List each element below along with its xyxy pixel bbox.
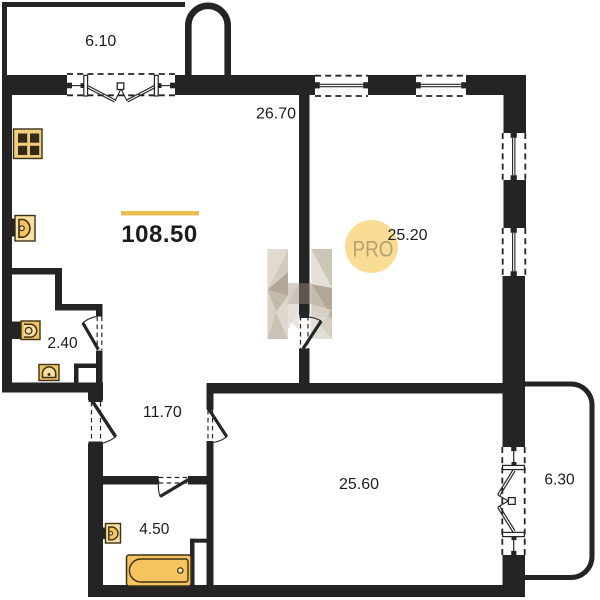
svg-text:6.30: 6.30	[544, 472, 575, 489]
svg-text:4.50: 4.50	[139, 521, 170, 538]
svg-text:11.70: 11.70	[143, 404, 182, 421]
svg-text:2.40: 2.40	[47, 335, 78, 352]
svg-text:26.70: 26.70	[256, 106, 296, 123]
svg-text:6.10: 6.10	[85, 33, 116, 50]
svg-text:108.50: 108.50	[121, 221, 197, 248]
svg-text:25.20: 25.20	[387, 227, 427, 244]
svg-text:25.60: 25.60	[339, 476, 379, 493]
